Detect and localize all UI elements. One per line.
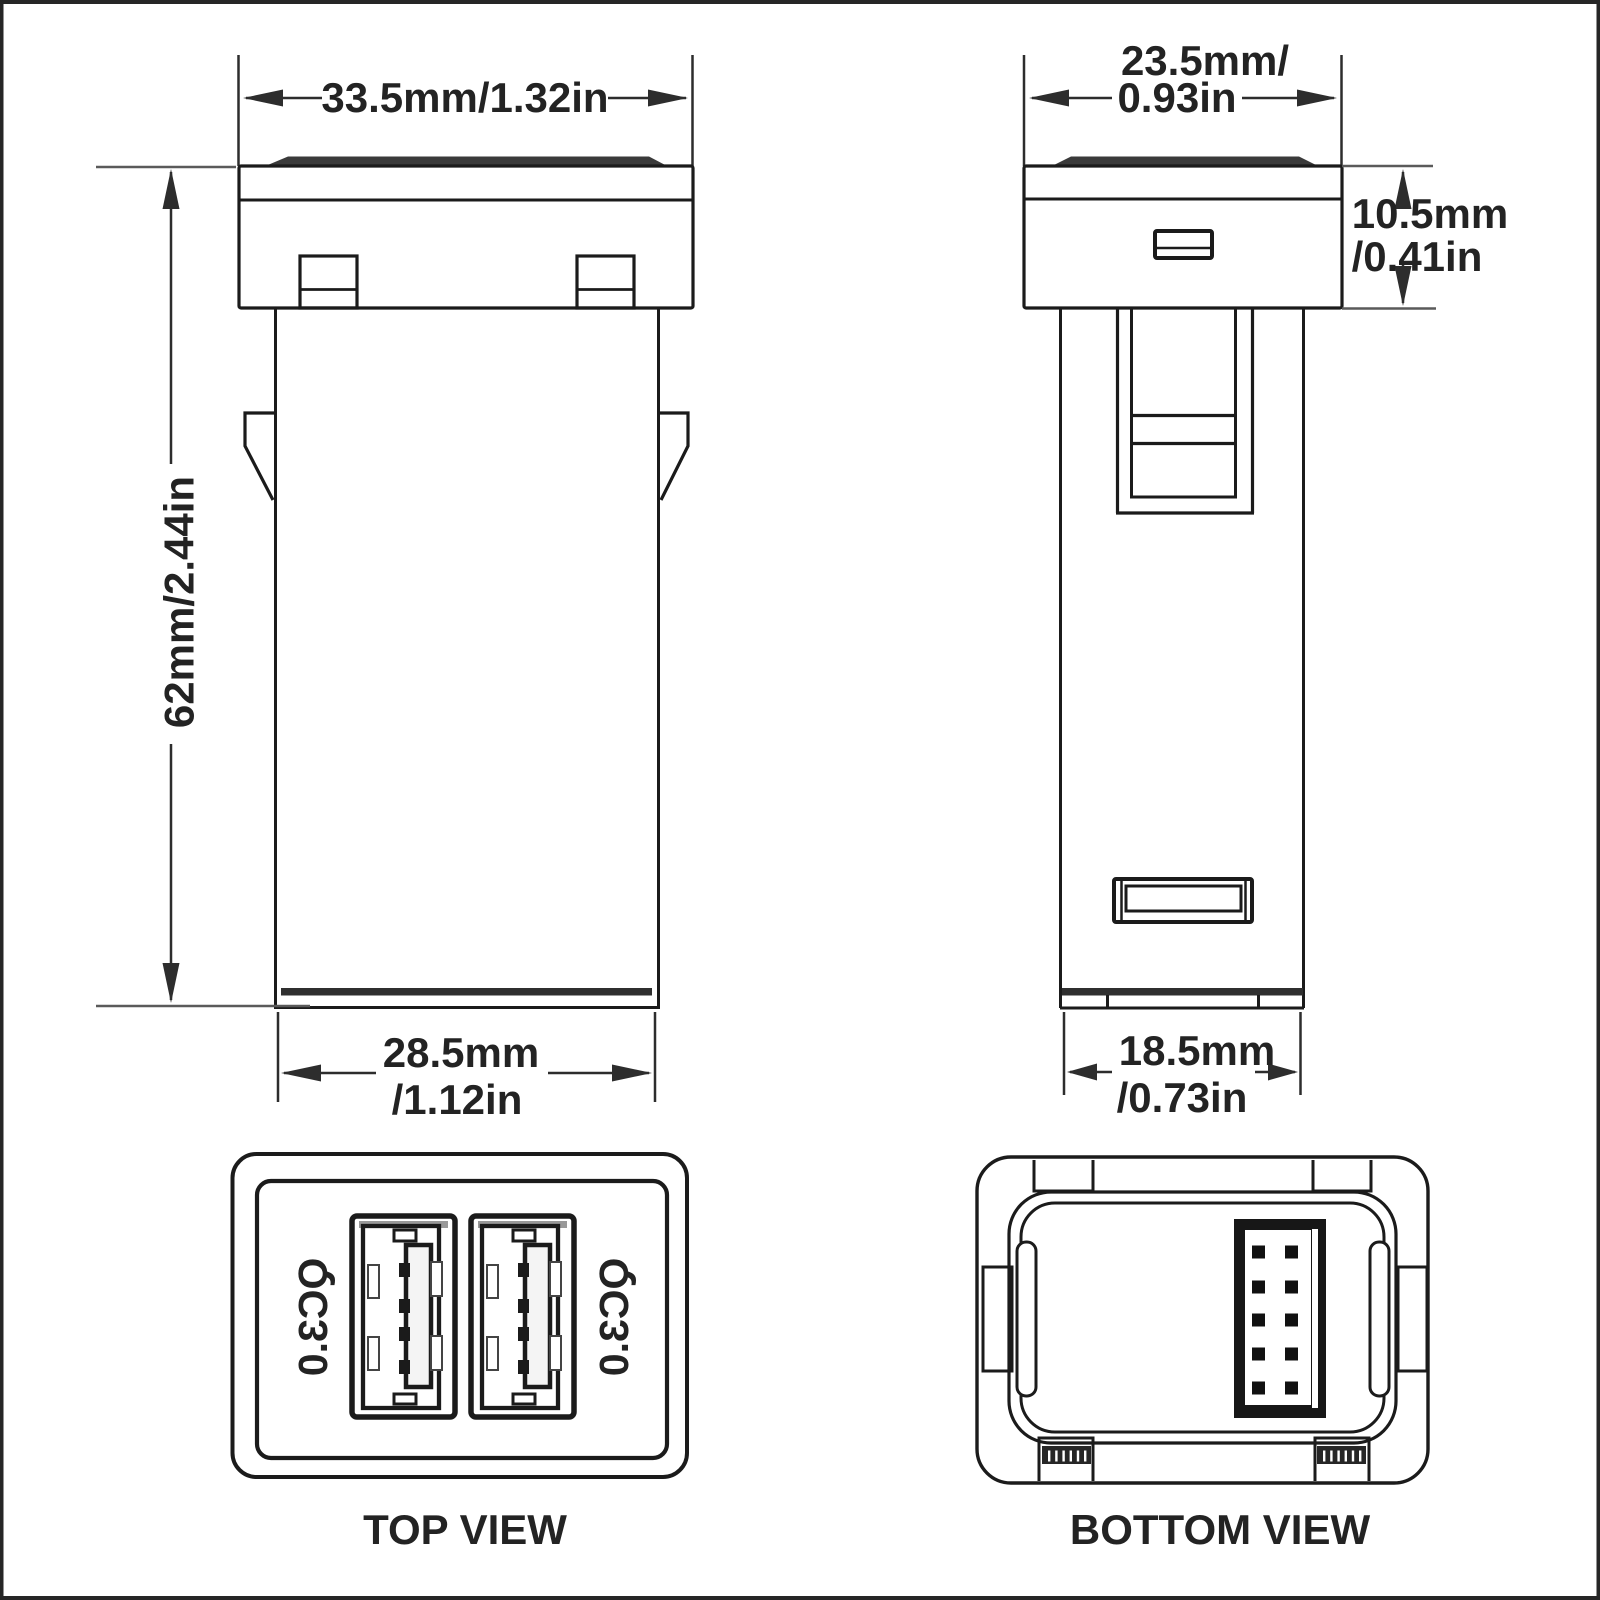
svg-text:QC3.0: QC3.0 bbox=[591, 1258, 637, 1377]
svg-text:QC3.0: QC3.0 bbox=[290, 1258, 336, 1377]
svg-text:10.5mm: 10.5mm bbox=[1352, 190, 1508, 237]
svg-text:33.5mm/1.32in: 33.5mm/1.32in bbox=[321, 74, 608, 121]
svg-text:62mm/2.44in: 62mm/2.44in bbox=[156, 476, 203, 728]
svg-text:28.5mm: 28.5mm bbox=[383, 1029, 539, 1076]
svg-text:TOP VIEW: TOP VIEW bbox=[363, 1506, 567, 1553]
svg-text:/1.12in: /1.12in bbox=[392, 1076, 523, 1123]
svg-text:BOTTOM VIEW: BOTTOM VIEW bbox=[1070, 1506, 1371, 1553]
svg-text:0.93in: 0.93in bbox=[1117, 74, 1236, 121]
svg-text:/0.41in: /0.41in bbox=[1352, 233, 1483, 280]
svg-text:18.5mm: 18.5mm bbox=[1119, 1027, 1275, 1074]
svg-text:/0.73in: /0.73in bbox=[1117, 1074, 1248, 1121]
